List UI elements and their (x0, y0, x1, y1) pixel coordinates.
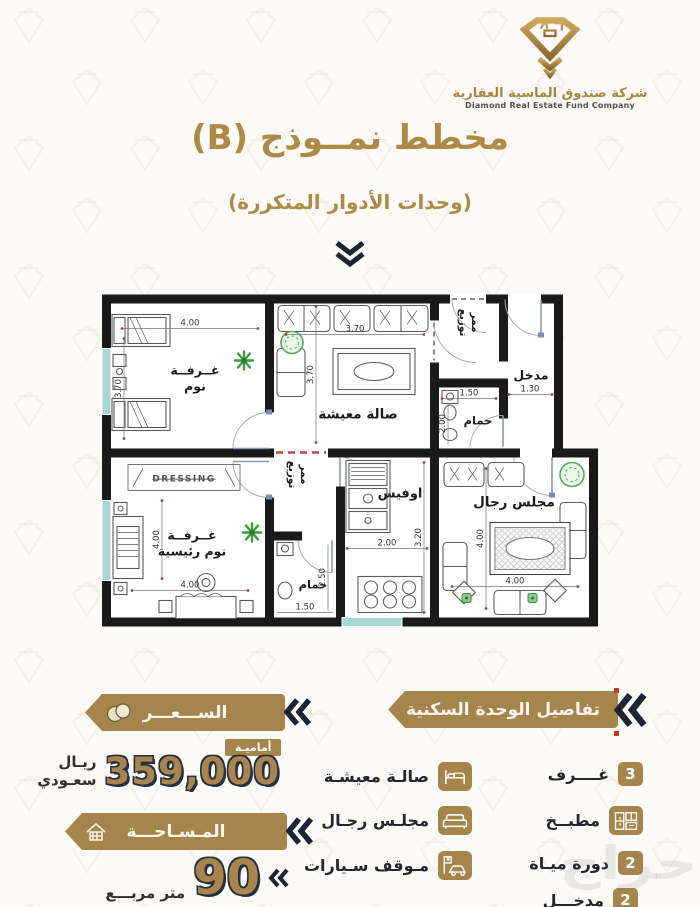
double-chevron-down-icon (0, 240, 700, 272)
dim-majlis-w: 4.00 (506, 577, 525, 587)
double-chevron-left-icon (268, 868, 290, 888)
parking-label: مـوقف سـيارات (304, 856, 429, 875)
room-corridor-mid-label-2: توزيع (286, 461, 298, 489)
sofa-icon (438, 806, 472, 835)
price-banner-label: الســـعـــر (143, 703, 228, 723)
area-banner-label: المـسـاحـــة (127, 822, 226, 842)
majlis-label: مجلـس رجـال (321, 811, 429, 830)
detail-item-parking: مـوقف سـيارات (304, 851, 472, 880)
room-majlis-label: مجلس رجال (473, 495, 555, 511)
rooms-label: غــــرف (548, 765, 609, 784)
details-banner-label: تفاصيل الوحدة السكنية (406, 700, 600, 720)
bed-icon (438, 762, 472, 791)
company-logo: شركة صندوق الماسية العقارية Diamond Real… (450, 14, 650, 110)
dim-office-h: 3.20 (414, 528, 424, 547)
price-currency: ريـال سعـودي (37, 753, 96, 793)
car-icon (438, 851, 472, 880)
page-title: مخطط نمــوذج (B) (0, 118, 700, 158)
kitchen-label: مطبــخ (546, 811, 601, 830)
dim-bath-top-h: 2.00 (438, 414, 448, 433)
room-corridor-mid-label-1: ممر (298, 463, 310, 484)
company-name-arabic: شركة صندوق الماسية العقارية (450, 86, 650, 101)
dim-majlis-h: 4.00 (476, 529, 486, 548)
room-bedroom-label-1: غــرفــة (170, 363, 219, 378)
living-label: صالـة معيشـة (324, 767, 429, 786)
kitchen-icon (609, 806, 643, 835)
room-corridor-top-label-2: توزيع (457, 309, 469, 337)
coins-icon (105, 703, 133, 723)
detail-item-living: صالـة معيشـة (324, 762, 472, 791)
room-office-label: اوفيس (378, 487, 423, 502)
detail-item-kitchen: مطبــخ (546, 806, 644, 835)
company-name-english: Diamond Real Estate Fund Company (450, 101, 650, 110)
room-master-label-2: نوم رئيسية (158, 544, 226, 560)
dim-bath-bottom-w: 1.50 (296, 603, 315, 613)
area-value: 90 (193, 850, 260, 906)
entrance-label: مدخـــل (543, 891, 604, 907)
dim-bath-top-w: 1.50 (460, 389, 479, 399)
dressing-label: DRESSING (152, 475, 215, 485)
floor-plan: 4.00 3.70 3.70 3.70 1.50 2.00 1.30 2.00 … (100, 288, 600, 638)
detail-item-rooms: 3 غــــرف (548, 762, 643, 786)
room-entry-label: مدخل (513, 368, 548, 383)
room-master-label-1: غــرفــة (167, 528, 216, 543)
flyer-page: شركة صندوق الماسية العقارية Diamond Real… (0, 0, 700, 907)
entrance-count-badge: 2 (613, 888, 638, 907)
dim-bedroom-h: 3.70 (114, 379, 124, 398)
watermark: حراج (560, 836, 698, 890)
detail-item-entrance: 2 مدخـــل (543, 888, 638, 907)
price-value-row: 359,000 ريـال سعـودي (48, 750, 288, 793)
double-chevron-left-icon (614, 691, 648, 729)
price-banner: الســـعـــر (85, 694, 285, 731)
area-value-row: 90 متر مربـــع (70, 850, 290, 906)
price-value: 359,000 (104, 750, 280, 793)
room-bath-bottom-label: حمام (299, 578, 328, 592)
room-bath-top-label: حمام (464, 414, 493, 428)
double-chevron-left-icon (284, 697, 312, 727)
rooms-count-badge: 3 (618, 762, 643, 786)
room-corridor-top-label-1: ممر (469, 311, 481, 332)
red-dot-accent (614, 731, 619, 736)
floor-plan-svg: 4.00 3.70 3.70 3.70 1.50 2.00 1.30 2.00 … (100, 288, 600, 638)
details-banner: تفاصيل الوحدة السكنية (388, 691, 618, 728)
dim-living-h: 3.70 (306, 365, 316, 384)
detail-item-majlis: مجلـس رجـال (321, 806, 472, 835)
diamond-logo-icon (504, 14, 596, 80)
room-bedroom-label-2: نوم (184, 379, 206, 395)
double-chevron-left-icon (286, 816, 314, 846)
house-icon (85, 821, 107, 843)
page-subtitle: (وحدات الأدوار المتكررة) (0, 190, 700, 214)
dim-master-w: 4.00 (181, 581, 200, 591)
dim-office-w: 2.00 (378, 539, 397, 549)
dim-living-w: 3.70 (346, 325, 365, 335)
dim-entry-w: 1.30 (521, 385, 540, 395)
red-dot-accent (614, 688, 619, 693)
room-living-label: صالة معيشة (318, 407, 397, 423)
area-unit: متر مربـــع (105, 884, 185, 906)
dim-bedroom-w: 4.00 (181, 319, 200, 329)
area-banner: المـسـاحـــة (65, 813, 287, 850)
